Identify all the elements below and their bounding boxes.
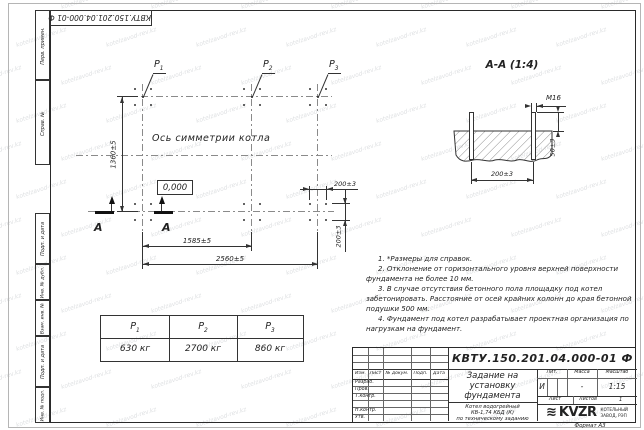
section-bolt-right xyxy=(531,112,536,160)
ext-line xyxy=(332,203,350,204)
mass-label: Масса xyxy=(567,370,597,375)
col-data: Дата xyxy=(430,371,448,376)
logo-cell: ≋ KVZR КОТЕЛЬНЫЙ ЗАВОД, РЭП xyxy=(537,404,637,421)
load-table-header-p2: Р2 xyxy=(169,321,237,334)
load-value-p1: 630 кг xyxy=(101,344,169,354)
bolt-group-p3-bottom xyxy=(308,202,328,222)
dim-bolt-spacing-x: 200±3 xyxy=(334,180,356,188)
dim-height: 1360±5 xyxy=(110,133,119,177)
load-value-p3: 860 кг xyxy=(237,344,303,354)
dim-section-bolt-spacing: 200±3 xyxy=(480,170,524,178)
section-bolt-left xyxy=(469,112,474,160)
row-nkontr: Н.контр. xyxy=(355,408,385,413)
drawing-sheet: kotelzavod-rev.kzkotelzavod-rev.kzkotelz… xyxy=(0,0,644,430)
col-list: Лист xyxy=(368,371,383,376)
doc-title-line3: фундамента xyxy=(448,391,537,401)
scale-value: 1:15 xyxy=(597,382,637,391)
lit-label: Лит. xyxy=(537,370,567,375)
stamp-perv-primen: Перв. примен. xyxy=(35,10,50,80)
row-utv: Утв. xyxy=(355,415,385,420)
ext-line xyxy=(251,232,252,251)
note-3: 3. В случае отсутствия бетонного пола пл… xyxy=(366,285,632,315)
lit-value: И xyxy=(537,382,547,391)
dim-span-p1-p2: 1585±5 xyxy=(167,237,227,245)
row-tkontr: Т.контр. xyxy=(355,394,385,399)
mass-value: - xyxy=(567,382,597,391)
load-label-p1: Р1 xyxy=(154,59,163,72)
leader-shelf-p1 xyxy=(153,73,166,74)
top-doc-number-box: КВТУ.150.201.04.000-01 Ф xyxy=(50,10,152,26)
centerline-top-row xyxy=(126,96,332,97)
sheets-value: 1 xyxy=(619,397,633,403)
load-label-p3: Р3 xyxy=(329,59,338,72)
ext-line xyxy=(531,103,532,112)
row-razrab: Разраб. xyxy=(355,380,385,385)
load-table-header-p3: Р3 xyxy=(237,321,303,334)
load-label-p2: Р2 xyxy=(263,59,272,72)
dim-line-p1-p3 xyxy=(143,264,318,265)
row-prov: Пров. xyxy=(355,387,385,392)
bolt-group-p2-top xyxy=(242,87,262,107)
doc-title-line1: Задание на xyxy=(448,371,537,381)
col-dokum: № докум. xyxy=(383,371,411,376)
ext-line xyxy=(537,112,564,113)
product-line3: по техническому заданию xyxy=(448,416,537,422)
dim-line-section-bolts xyxy=(471,180,533,181)
doc-title-line2: установку xyxy=(448,381,537,391)
kvzr-wave-icon: ≋ xyxy=(546,406,557,419)
col-podp: Подп. xyxy=(411,371,430,376)
section-letter-right: А xyxy=(162,221,171,234)
section-letter-left: А xyxy=(94,221,103,234)
notes-block: 1. *Размеры для справок. 2. Отклонение о… xyxy=(366,255,632,335)
dim-bolt-spacing-y: 200±3 xyxy=(335,215,344,259)
elevation-mark: 0,000 xyxy=(158,183,192,193)
section-cut-mark-left xyxy=(95,211,114,214)
sheets-label: Листов xyxy=(579,397,609,402)
bolt-group-p3-top xyxy=(308,87,328,107)
format-label: Формат А3 xyxy=(535,423,644,429)
kvzr-logo-text: KVZR xyxy=(559,406,597,419)
title-block: Изм. Лист № докум. Подп. Дата Разраб. Пр… xyxy=(352,347,636,423)
ext-line xyxy=(533,162,534,184)
dim-line-p1-p2 xyxy=(143,246,252,247)
stamp-label: Справ. № xyxy=(40,94,46,154)
leader-shelf-p3 xyxy=(328,73,341,74)
top-doc-number: КВТУ.150.201.04.000-01 Ф xyxy=(51,13,151,22)
dim-span-p1-p3: 2560±5 xyxy=(200,255,260,263)
stamp-sprav-no: Справ. № xyxy=(35,80,50,165)
stamp-inv-podl: Инв. № подл. xyxy=(35,387,50,423)
load-table-header-p1: Р1 xyxy=(101,321,169,334)
title-doc-number: КВТУ.150.201.04.000-01 Ф xyxy=(448,352,637,365)
stamp-label: Инв. № подл. xyxy=(41,376,46,430)
section-cut-mark-right xyxy=(154,211,173,214)
note-4: 4. Фундамент под котел разрабатывает про… xyxy=(366,315,632,335)
bolt-group-p1-bottom xyxy=(133,202,153,222)
thread-label: М16 xyxy=(546,94,561,102)
load-table: Р1 Р2 Р3 630 кг 2700 кг 860 кг xyxy=(100,315,304,362)
leader-shelf-m16 xyxy=(537,106,566,107)
note-2: 2. Отклонение от горизонтального уровня … xyxy=(366,265,632,285)
load-value-p2: 2700 кг xyxy=(169,344,237,354)
col-izm: Изм. xyxy=(353,371,368,376)
elevation-box: 0,000 xyxy=(157,180,193,195)
section-title: А-А (1:4) xyxy=(470,59,554,71)
bolt-group-p1-top xyxy=(133,87,153,107)
logo-caption-line2: ЗАВОД, РЭП xyxy=(601,413,628,418)
dim-line-protrusion xyxy=(558,112,559,131)
sheet-label: Лист xyxy=(537,397,573,402)
dim-line-height xyxy=(122,97,123,212)
bolt-group-p2-bottom xyxy=(242,202,262,222)
leader-shelf-p2 xyxy=(262,73,275,74)
symmetry-axis-label: Ось симметрии котла xyxy=(152,133,270,144)
stamp-vzam-inv: Взам. инв. № xyxy=(35,300,50,336)
scale-label: Масштаб xyxy=(597,370,637,375)
dim-protrusion: 50±3 xyxy=(549,126,558,170)
note-1: 1. *Размеры для справок. xyxy=(366,255,632,265)
stamp-label: Перв. примен. xyxy=(40,16,46,76)
